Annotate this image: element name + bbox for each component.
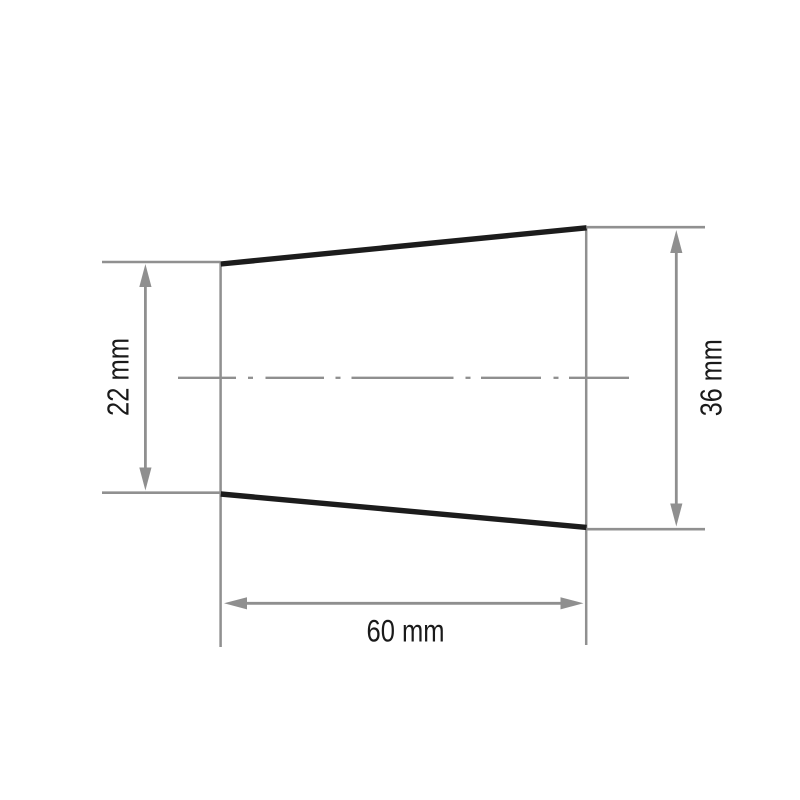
svg-text:36 mm: 36 mm	[695, 339, 729, 416]
svg-text:60 mm: 60 mm	[367, 613, 445, 649]
svg-text:22 mm: 22 mm	[102, 338, 136, 416]
